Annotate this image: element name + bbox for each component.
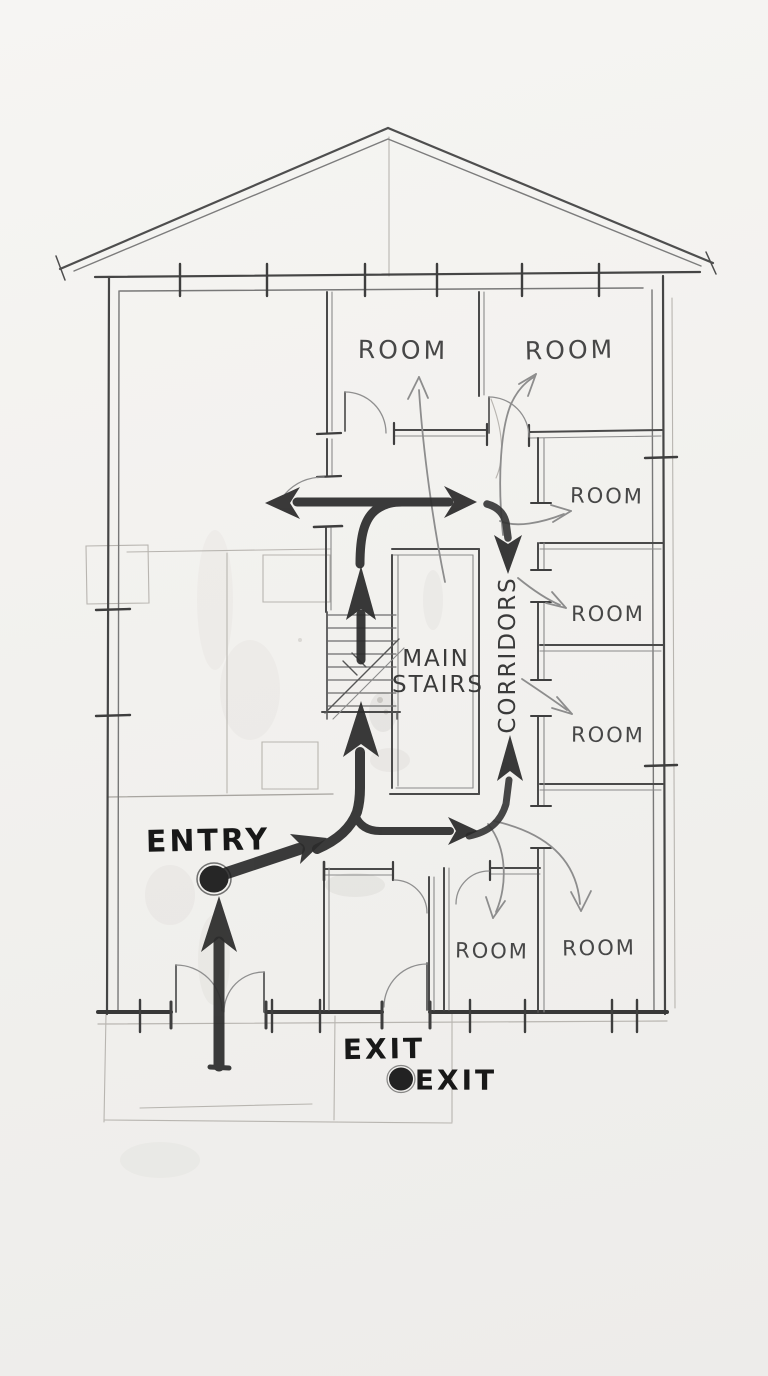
main-stairs-label-line2: STAIRS — [392, 672, 484, 698]
room-label-bottom-center: ROOM — [455, 938, 529, 963]
entry-dot-marker — [197, 863, 231, 895]
room-label-bottom-right: ROOM — [562, 935, 636, 960]
room-label-right-lower: ROOM — [571, 723, 645, 748]
room-label-top-right: ROOM — [525, 335, 616, 366]
exit-marker-label: EXIT — [415, 1064, 497, 1097]
room-label-top-center: ROOM — [358, 335, 449, 365]
interior-walls — [324, 292, 663, 1012]
exit-dot-marker — [387, 1066, 415, 1093]
main-stairs-label-line1: MAIN — [402, 646, 470, 672]
corridors-label: CORRIDORS — [495, 576, 521, 733]
roof-outline — [56, 128, 716, 280]
exit-door-label: EXIT — [343, 1032, 426, 1066]
floor-plan-drawing — [0, 0, 768, 1376]
entry-label: ENTRY — [146, 822, 271, 860]
construction-lines — [86, 137, 675, 1123]
floor-plan-sketch: ROOM ROOM ROOM ROOM ROOM ROOM ROOM MAIN … — [0, 0, 768, 1376]
room-label-right-middle: ROOM — [571, 602, 645, 626]
room-label-right-upper: ROOM — [570, 483, 644, 508]
